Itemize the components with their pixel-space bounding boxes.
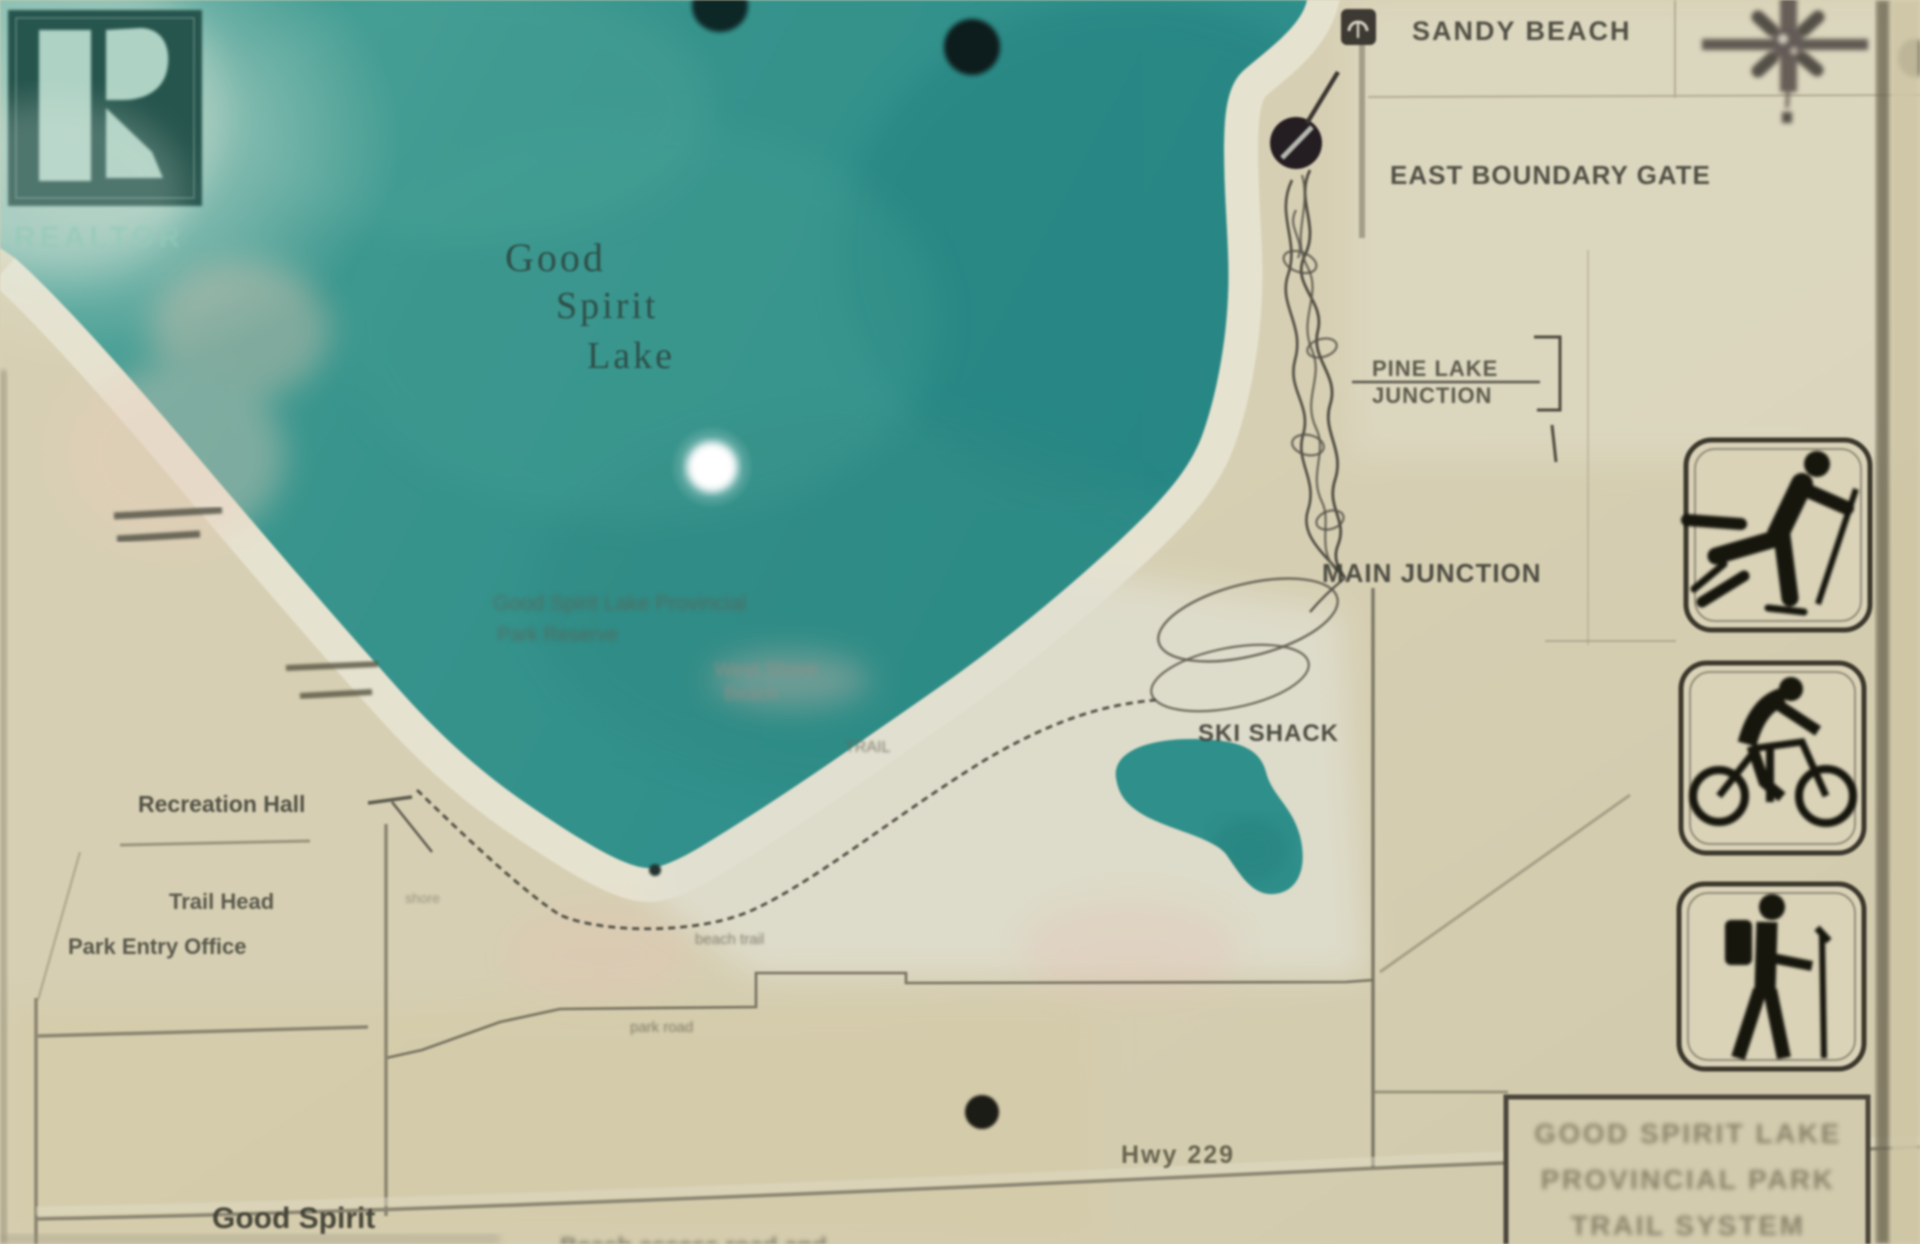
svg-text:Recreation Hall: Recreation Hall	[138, 791, 305, 817]
svg-text:TRAIL SYSTEM: TRAIL SYSTEM	[1571, 1210, 1806, 1241]
svg-text:Trail Head: Trail Head	[169, 889, 274, 914]
svg-text:EAST BOUNDARY GATE: EAST BOUNDARY GATE	[1390, 160, 1711, 190]
svg-text:Good Spirit: Good Spirit	[212, 1202, 375, 1235]
svg-text:park road: park road	[630, 1019, 693, 1036]
svg-text:Beach access road and: Beach access road and	[560, 1233, 827, 1244]
svg-text:shore: shore	[405, 890, 440, 906]
svg-text:Good: Good	[505, 235, 606, 280]
svg-text:MAIN JUNCTION: MAIN JUNCTION	[1322, 558, 1542, 588]
svg-text:beach trail: beach trail	[695, 931, 764, 948]
svg-text:Beach: Beach	[724, 684, 778, 705]
svg-text:Park Entry Office: Park Entry Office	[68, 934, 247, 959]
svg-text:SANDY BEACH: SANDY BEACH	[1412, 16, 1632, 46]
svg-text:Hwy 229: Hwy 229	[1121, 1141, 1235, 1169]
svg-text:JUNCTION: JUNCTION	[1372, 383, 1492, 408]
svg-text:West Shore: West Shore	[714, 659, 818, 681]
svg-text:SKI SHACK: SKI SHACK	[1198, 720, 1339, 747]
svg-text:PROVINCIAL PARK: PROVINCIAL PARK	[1541, 1164, 1836, 1195]
svg-text:Spirit: Spirit	[556, 285, 658, 327]
svg-text:Good Spirit Lake Provincial: Good Spirit Lake Provincial	[493, 592, 746, 615]
svg-text:PINE LAKE: PINE LAKE	[1372, 356, 1498, 381]
svg-text:GOOD SPIRIT LAKE: GOOD SPIRIT LAKE	[1534, 1118, 1842, 1149]
svg-text:Lake: Lake	[587, 335, 675, 377]
svg-text:TRAIL: TRAIL	[845, 739, 890, 756]
svg-text:Park Reserve: Park Reserve	[497, 624, 618, 646]
